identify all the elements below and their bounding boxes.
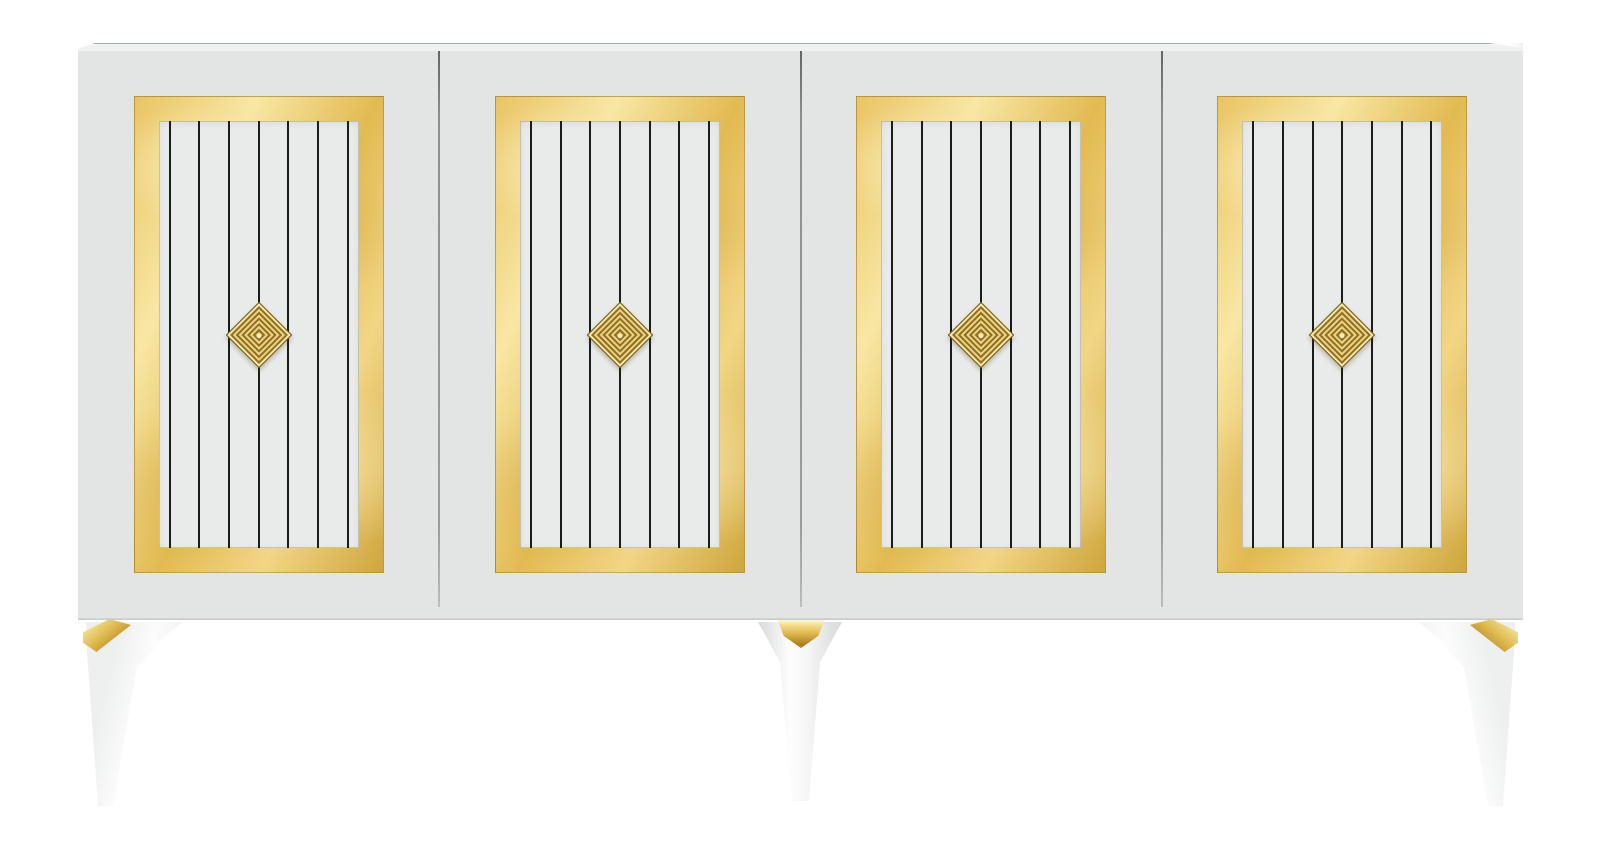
door-gold-frame	[495, 96, 745, 573]
product-photo-scene: White modern sideboard with four doors, …	[0, 0, 1600, 847]
door-gap	[438, 51, 440, 607]
panel-stripe	[1401, 121, 1403, 548]
panel-stripe	[891, 121, 893, 548]
panel-stripe	[198, 121, 200, 548]
cabinet-top-surface	[78, 43, 1523, 51]
door-gold-frame	[856, 96, 1106, 573]
panel-stripe	[530, 121, 532, 548]
door-1	[78, 51, 439, 618]
door-3	[801, 51, 1162, 618]
panel-stripe	[1430, 121, 1432, 548]
door-gap	[1161, 51, 1163, 607]
door-row	[78, 51, 1523, 618]
panel-stripe	[921, 121, 923, 548]
panel-stripe	[317, 121, 319, 548]
panel-stripe	[678, 121, 680, 548]
panel-stripe	[560, 121, 562, 548]
door-gap	[800, 51, 802, 607]
panel-stripe	[1252, 121, 1254, 548]
panel-stripe	[347, 121, 349, 548]
door-2	[439, 51, 800, 618]
panel-stripe	[1069, 121, 1071, 548]
panel-stripe	[169, 121, 171, 548]
door-gold-frame	[134, 96, 384, 573]
panel-stripe	[708, 121, 710, 548]
product-caption: White modern sideboard with four doors, …	[0, 0, 1, 1]
sideboard-cabinet	[78, 43, 1523, 620]
door-4	[1162, 51, 1523, 618]
door-gold-frame	[1217, 96, 1467, 573]
panel-stripe	[1039, 121, 1041, 548]
cabinet-bottom-edge	[78, 618, 1523, 620]
panel-stripe	[1282, 121, 1284, 548]
